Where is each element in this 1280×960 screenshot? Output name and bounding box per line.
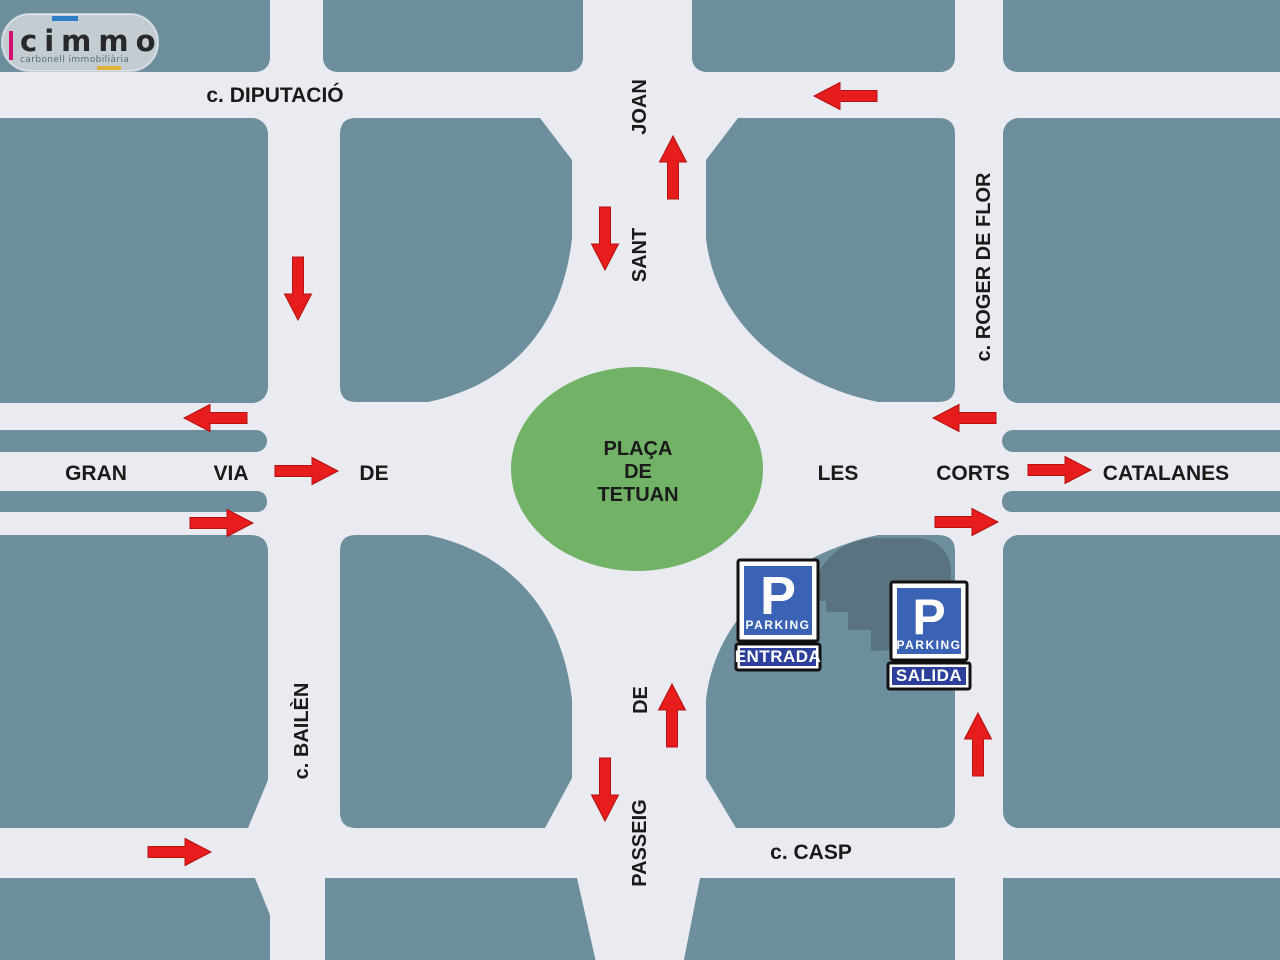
label-sant: SANT [629,228,651,282]
label-corts: CORTS [936,462,1010,485]
label-passeig: PASSEIG [629,799,651,886]
city-block [1003,0,1280,72]
plaza-line1: PLAÇA [604,438,673,460]
label-gran: GRAN [65,462,127,485]
city-block [1003,535,1280,828]
city-block [325,878,600,960]
logo-tagline-text: carbonell immobiliària [20,55,129,65]
city-block [0,878,270,960]
city-block [0,118,268,403]
logo-brand-text: cimmo [20,24,163,58]
plaza-line3: TETUAN [597,484,678,506]
city-block [0,535,268,828]
parking-p-symbol: P [760,566,796,626]
map-canvas: PLAÇA DE TETUAN c. DIPUTACIÓ c. CASP GRA… [0,0,1280,960]
parking-word: PARKING [746,618,811,632]
city-block [1003,878,1280,960]
label-joan: JOAN [629,79,651,135]
city-block [1003,118,1280,403]
parking-p-symbol: P [912,589,945,645]
label-de-south: DE [630,686,652,714]
city-block [323,0,583,72]
logo-pink-bar [9,31,13,60]
parking-salida-sign: P PARKING SALIDA [888,582,970,689]
logo-yellow-bar [97,66,121,70]
label-catalanes: CATALANES [1103,462,1229,485]
cimmo-logo: cimmo carbonell immobiliària [2,14,163,71]
label-diputacio: c. DIPUTACIÓ [206,83,343,107]
median-strip [1002,430,1280,452]
salida-label: SALIDA [896,666,962,685]
median-strip [0,491,267,512]
parking-entrada-sign: P PARKING ENTRADA [735,560,822,670]
label-roger-de-flor: c. ROGER DE FLOR [973,172,995,361]
label-bailen: c. BAILÈN [290,683,313,780]
parking-word: PARKING [897,638,962,652]
median-strip [0,430,267,452]
entrada-label: ENTRADA [735,647,822,666]
label-via: VIA [213,462,248,485]
city-block [692,0,955,72]
city-block [680,878,955,960]
label-de-west: DE [359,462,388,485]
median-strip [1002,491,1280,512]
label-les: LES [818,462,859,485]
logo-blue-bar [52,16,78,21]
plaza-line2: DE [624,461,652,483]
label-casp: c. CASP [770,841,852,864]
